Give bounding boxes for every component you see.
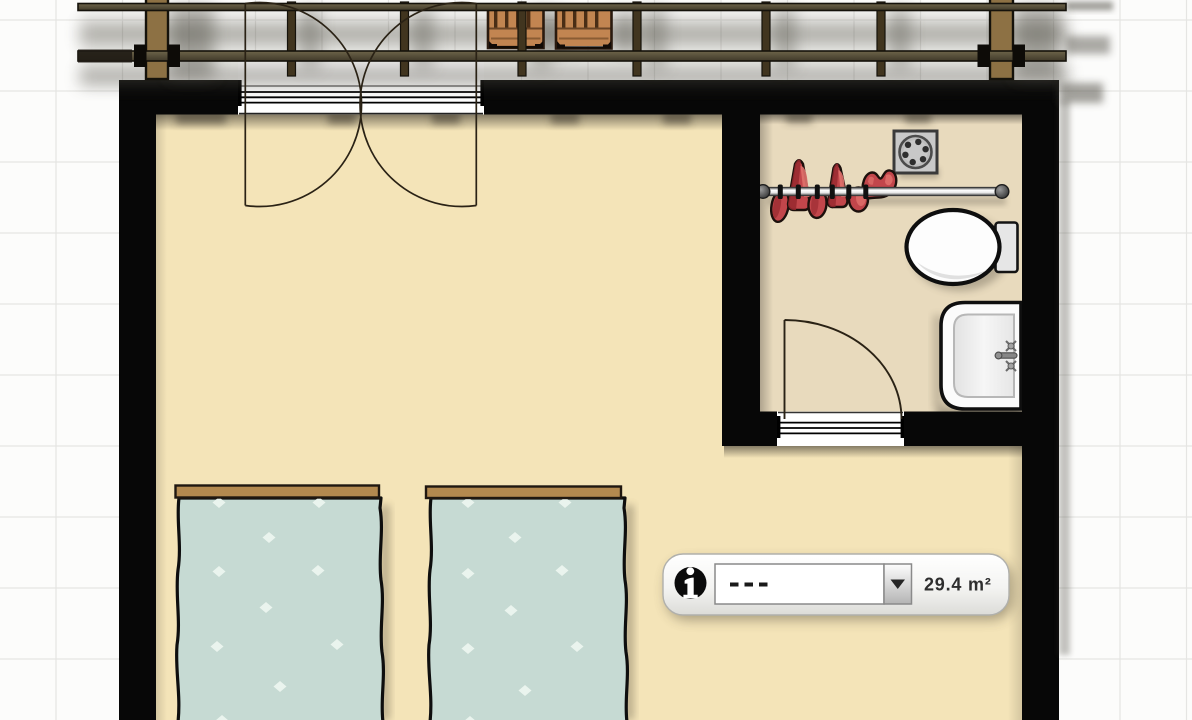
svg-text:29.4 m²: 29.4 m² xyxy=(924,575,992,595)
